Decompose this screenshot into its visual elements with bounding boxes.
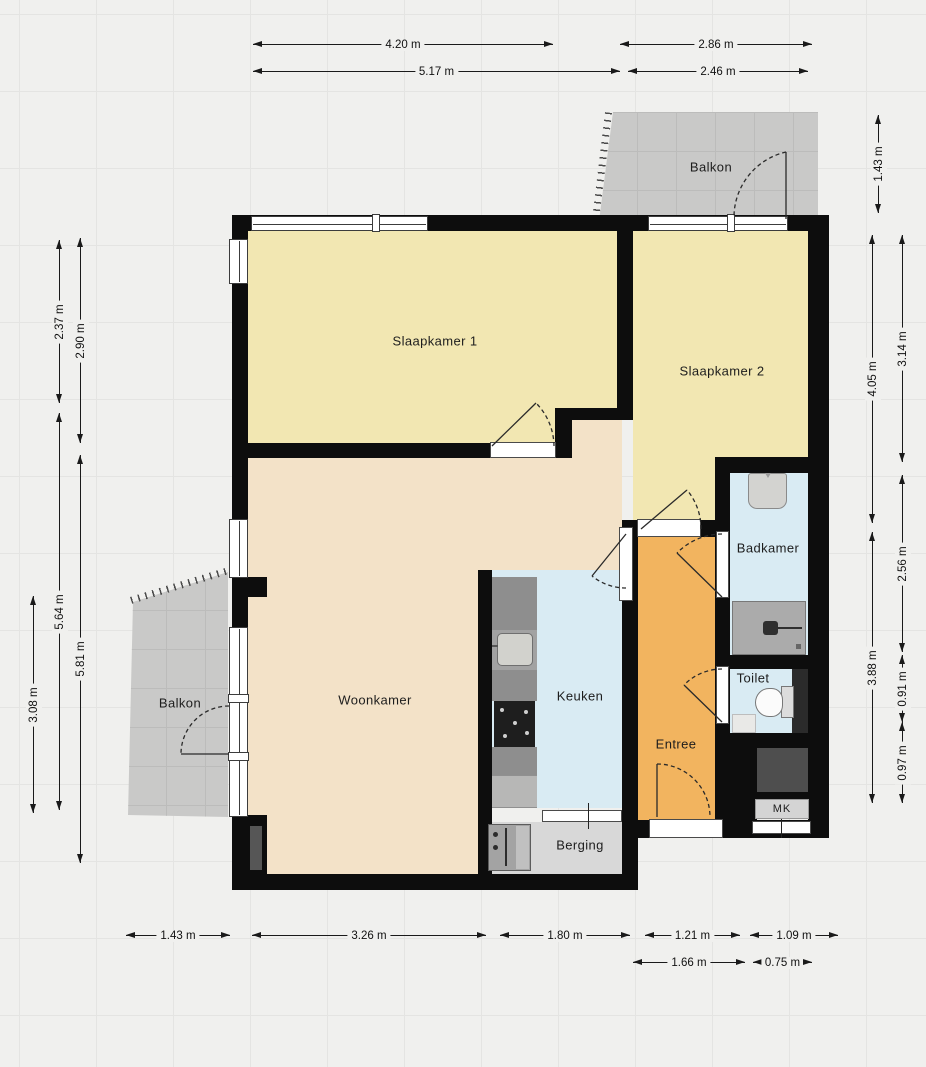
room-floor-woonkamer-nook xyxy=(572,420,622,458)
dimension-left-581: 5.81 m xyxy=(80,455,81,863)
dimension-right-405: 4.05 m xyxy=(872,235,873,523)
dimension-right-143: 1.43 m xyxy=(878,115,879,213)
dimension-bottom-166: 1.66 m xyxy=(633,962,745,963)
window-slaapkamer1-left xyxy=(229,239,248,284)
toilet-bowl xyxy=(755,688,783,717)
dimension-left-237: 2.37 m xyxy=(59,240,60,403)
room-label-mk: MK xyxy=(773,803,792,815)
room-floor-woonkamer-right xyxy=(478,458,622,570)
dimension-bottom-075: 0.75 m xyxy=(753,962,812,963)
balcony-door-window-woonkamer xyxy=(229,627,248,817)
shaft xyxy=(757,748,808,792)
room-label-keuken: Keuken xyxy=(557,689,604,704)
wall-badkamer-toilet xyxy=(730,655,829,669)
washing-machine-panel xyxy=(516,826,529,869)
room-label-berging: Berging xyxy=(556,838,604,853)
kitchen-sink xyxy=(497,633,533,666)
front-door-sill xyxy=(649,819,723,838)
room-label-toilet: Toilet xyxy=(737,671,770,686)
dimension-bottom-180: 1.80 m xyxy=(500,935,630,936)
wall-slaapkamer2-badkamer xyxy=(717,457,829,473)
room-floor-slaapkamer1-lower xyxy=(248,408,555,443)
toilet-duct xyxy=(792,669,808,733)
kitchen-counter xyxy=(492,577,537,630)
room-label-balkon-left: Balkon xyxy=(159,696,201,711)
wall-berging-right xyxy=(622,808,638,890)
door-sill-slaapkamer2 xyxy=(637,519,701,537)
dimension-bottom-326: 3.26 m xyxy=(252,935,486,936)
window-slaapkamer1-top xyxy=(251,216,428,231)
shower-arm xyxy=(778,627,802,629)
dimension-top-286: 2.86 m xyxy=(620,44,812,45)
wall-slaapkamer1-bottom xyxy=(248,443,490,458)
room-floor-slaapkamer1 xyxy=(248,231,617,408)
berging-opening-tick xyxy=(588,803,589,829)
room-floor-entree xyxy=(638,537,715,820)
wall-shaft-left xyxy=(715,733,757,820)
dimension-bottom-121: 1.21 m xyxy=(645,935,740,936)
cooktop-burner xyxy=(524,710,528,714)
shower-drain xyxy=(796,644,801,649)
wall-bedroom-divider xyxy=(617,231,633,420)
balcony-door-window-slaapkamer2 xyxy=(648,216,788,231)
dimension-right-091: 0.91 m xyxy=(902,655,903,722)
dimension-right-314: 3.14 m xyxy=(902,235,903,462)
kitchen-counter xyxy=(492,670,537,701)
berging-opening xyxy=(542,810,622,822)
door-sill-toilet xyxy=(716,666,729,724)
room-floor-woonkamer xyxy=(248,458,478,874)
room-label-badkamer: Badkamer xyxy=(737,541,799,556)
kitchen-tap xyxy=(492,645,498,647)
dimension-left-290: 2.90 m xyxy=(80,238,81,443)
window-divider-handle xyxy=(372,214,380,232)
balcony-door-handle xyxy=(228,752,249,761)
room-label-entree: Entree xyxy=(656,737,697,752)
toilet-mat xyxy=(732,714,756,733)
wall-bottom-main xyxy=(248,874,638,890)
washbasin xyxy=(748,473,787,509)
door-sill-keuken xyxy=(619,527,633,601)
room-floor-slaapkamer2-lower xyxy=(633,457,717,520)
washing-machine-knob xyxy=(493,845,498,850)
cooktop-burner xyxy=(503,734,507,738)
door-sill-slaapkamer1 xyxy=(490,442,556,458)
dimension-top-420: 4.20 m xyxy=(253,44,553,45)
washing-machine-line xyxy=(505,828,507,866)
dimension-bottom-109: 1.09 m xyxy=(750,935,838,936)
floorplan-canvas: MK xyxy=(0,0,926,1067)
kitchen-appliance xyxy=(492,775,537,808)
balcony-left-floor xyxy=(127,571,228,817)
room-floor-slaapkamer2 xyxy=(633,231,808,457)
washing-machine-knob xyxy=(493,832,498,837)
dimension-left-308: 3.08 m xyxy=(33,596,34,813)
dimension-top-517: 5.17 m xyxy=(253,71,620,72)
cooktop-burner xyxy=(500,708,504,712)
room-label-balkon-top: Balkon xyxy=(690,160,732,175)
room-label-slaapkamer2: Slaapkamer 2 xyxy=(679,364,764,379)
window-woonkamer-left xyxy=(229,519,248,578)
room-label-woonkamer: Woonkamer xyxy=(338,693,411,708)
cooktop-burner xyxy=(525,731,529,735)
dimension-bottom-143: 1.43 m xyxy=(126,935,230,936)
cooktop-burner xyxy=(513,721,517,725)
room-label-slaapkamer1: Slaapkamer 1 xyxy=(392,334,477,349)
dimension-right-388: 3.88 m xyxy=(872,532,873,803)
dimension-right-256: 2.56 m xyxy=(902,475,903,652)
dimension-left-564: 5.64 m xyxy=(59,413,60,810)
kitchen-counter xyxy=(492,747,537,775)
dimension-right-097: 0.97 m xyxy=(902,722,903,803)
radiator xyxy=(250,826,262,870)
balcony-door-handle xyxy=(228,694,249,703)
door-sill-badkamer xyxy=(716,531,729,598)
meter-cupboard: MK xyxy=(755,799,809,819)
shower-head-icon xyxy=(763,621,778,635)
wall-pier-left xyxy=(248,577,267,597)
window-divider-handle xyxy=(727,214,735,232)
dimension-top-246: 2.46 m xyxy=(628,71,808,72)
